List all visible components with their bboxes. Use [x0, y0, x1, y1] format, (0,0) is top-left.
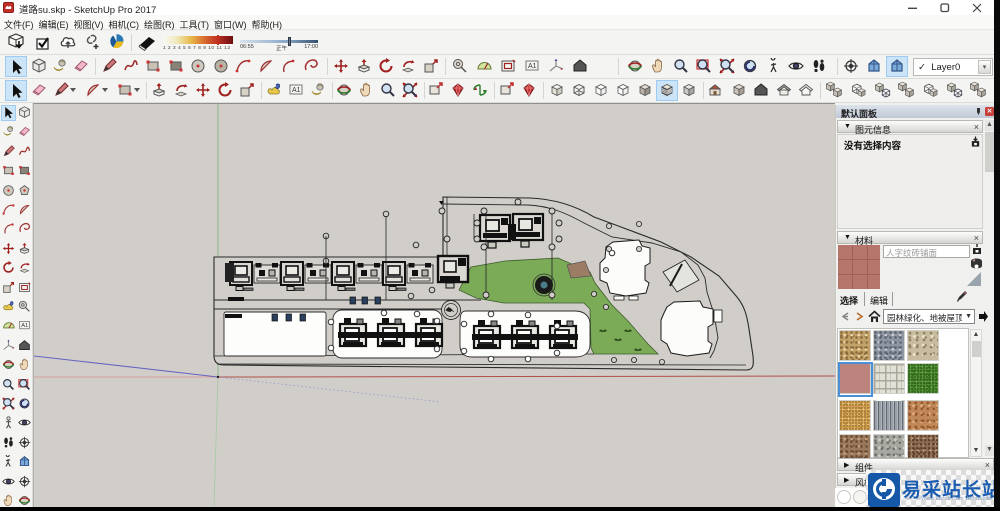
- svg-text:A1: A1: [292, 87, 301, 94]
- svg-text:A1: A1: [21, 324, 28, 330]
- svg-text:A1: A1: [528, 63, 537, 70]
